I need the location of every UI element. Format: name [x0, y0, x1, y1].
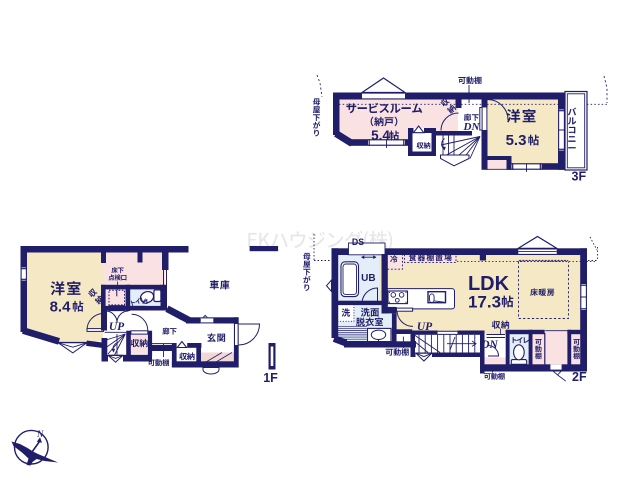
svg-text:DN: DN — [480, 339, 498, 351]
svg-text:8.4: 8.4 — [50, 299, 72, 316]
svg-text:5.4: 5.4 — [371, 128, 390, 143]
svg-text:N: N — [36, 430, 44, 440]
svg-text:UP: UP — [417, 321, 433, 333]
svg-text:UP: UP — [109, 321, 125, 333]
svg-text:1F: 1F — [263, 371, 278, 385]
svg-text:3F: 3F — [572, 169, 587, 183]
svg-text:17.3: 17.3 — [468, 292, 501, 311]
svg-text:5.3: 5.3 — [506, 132, 527, 149]
svg-text:DN: DN — [463, 121, 481, 133]
svg-text:2F: 2F — [572, 370, 587, 384]
svg-text:DS: DS — [352, 237, 364, 247]
svg-text:UB: UB — [361, 273, 375, 284]
